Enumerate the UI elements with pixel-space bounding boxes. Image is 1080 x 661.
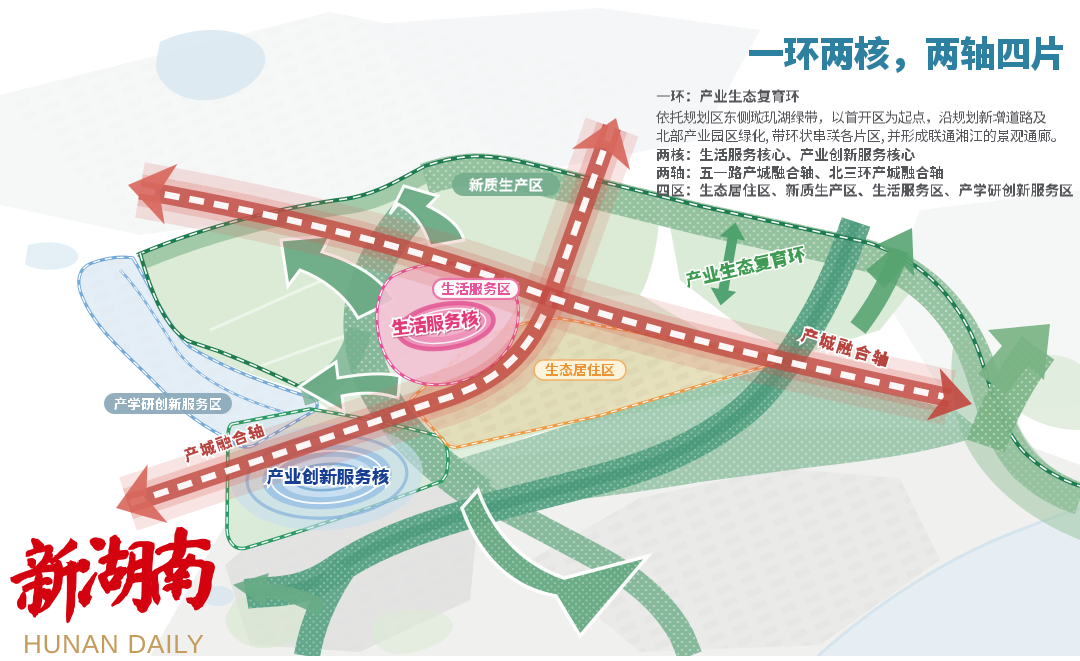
svg-text:HUNAN DAILY: HUNAN DAILY: [23, 629, 205, 656]
